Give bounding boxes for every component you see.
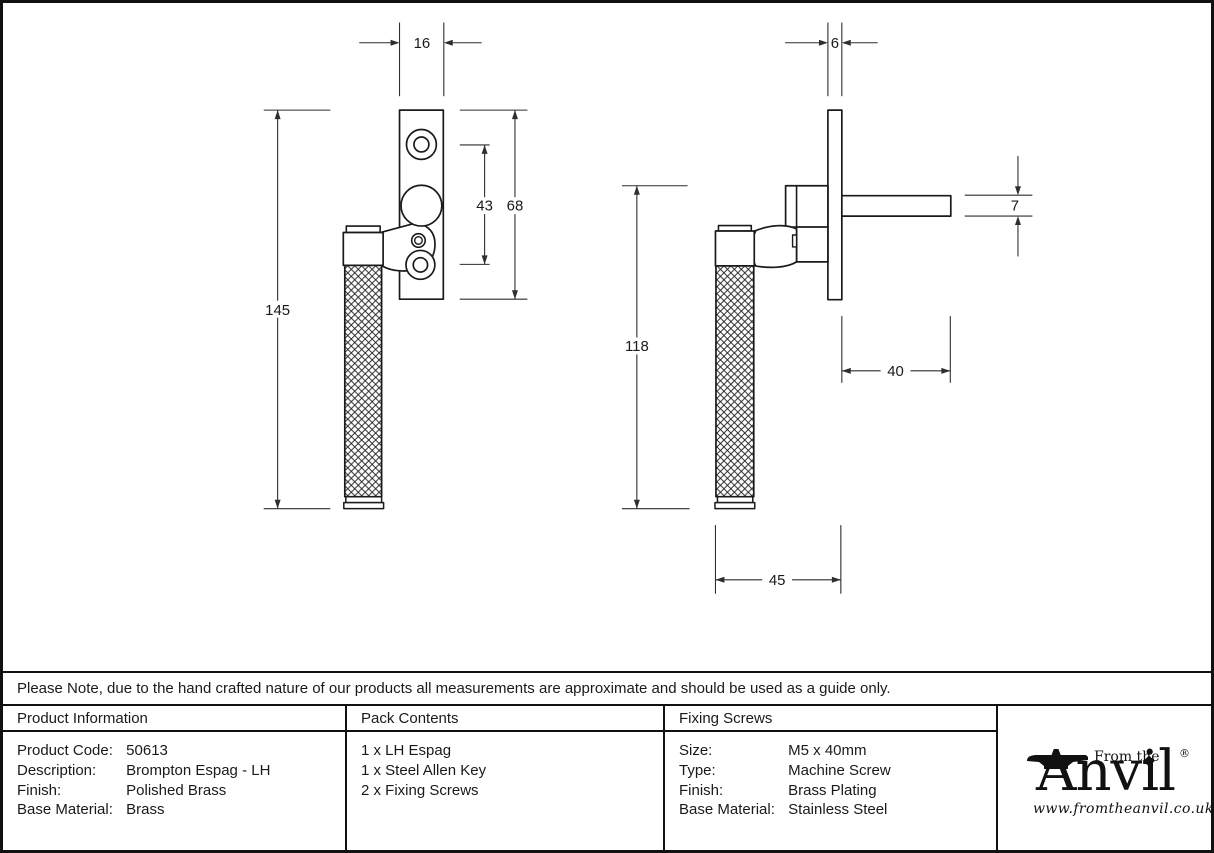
dim-plate-width: 16	[359, 23, 481, 97]
table-row: Finish: Brass Plating	[679, 781, 992, 801]
product-information-body: Product Code: 50613 Description: Brompto…	[3, 732, 345, 820]
knurled-grip-front	[345, 265, 382, 496]
anvil-icon	[1026, 753, 1090, 770]
side-view-dimensions: 6 118	[618, 23, 1032, 594]
pivot-knob-side	[786, 186, 828, 227]
product-information-column: Product Information Product Code: 50613 …	[3, 706, 347, 850]
dim-label-overall-length: 145	[265, 302, 290, 319]
knurled-grip-side	[716, 266, 754, 497]
table-row: Size: M5 x 40mm	[679, 741, 992, 761]
fixing-screws-body: Size: M5 x 40mm Type: Machine Screw Fini…	[665, 732, 996, 820]
ferrule-front	[343, 233, 383, 266]
table-row: Product Code: 50613	[17, 741, 341, 761]
dim-screw-spacing: 43	[460, 145, 498, 264]
dim-handle-length: 118	[618, 186, 690, 509]
table-row: Finish: Polished Brass	[17, 781, 341, 801]
dim-plate-thickness: 6	[785, 23, 878, 97]
dim-label-handle-length: 118	[625, 338, 649, 355]
dim-label-plate-thickness: 6	[831, 35, 839, 52]
espag-handle-drawing: 16 145	[3, 3, 1211, 671]
disclaimer-note: Please Note, due to the hand crafted nat…	[3, 671, 1211, 706]
list-item: 2 x Fixing Screws	[361, 781, 659, 801]
grip-end-cap-side	[717, 497, 752, 503]
ferrule-cap-front	[346, 226, 380, 232]
registered-trademark-icon: ®	[1179, 747, 1190, 760]
dim-label-spindle-square: 7	[1011, 198, 1019, 215]
technical-drawing-sheet: 16 145	[0, 0, 1214, 853]
spec-table: Product Information Product Code: 50613 …	[3, 706, 1211, 850]
front-view	[343, 110, 443, 509]
grip-end-cap-front	[346, 497, 382, 503]
grub-screw-side	[793, 235, 797, 247]
side-view	[715, 110, 951, 509]
backplate-side	[828, 110, 842, 300]
pack-contents-body: 1 x LH Espag 1 x Steel Allen Key 2 x Fix…	[347, 732, 663, 800]
dim-spindle-square: 7	[965, 156, 1033, 257]
dim-overall-length: 145	[261, 110, 331, 509]
dim-label-screw-spacing: 43	[476, 198, 493, 215]
table-row: Description: Brompton Espag - LH	[17, 761, 341, 781]
table-row: Base Material: Brass	[17, 800, 341, 820]
table-row: Type: Machine Screw	[679, 761, 992, 781]
dim-label-spindle-length: 40	[887, 363, 904, 380]
dim-projection: 45	[715, 525, 840, 594]
dim-spindle-length: 40	[842, 316, 950, 383]
dim-label-projection: 45	[769, 572, 786, 589]
dim-label-plate-width: 16	[414, 35, 431, 52]
spindle	[842, 196, 951, 216]
brand-logo-box: From the Anvil ® www.fromtheanvil.co.uk	[998, 706, 1211, 850]
list-item: 1 x Steel Allen Key	[361, 761, 659, 781]
fixing-screws-column: Fixing Screws Size: M5 x 40mm Type: Mach…	[665, 706, 998, 850]
drawing-area: 16 145	[3, 3, 1211, 671]
ferrule-side	[715, 231, 754, 266]
pack-contents-column: Pack Contents 1 x LH Espag 1 x Steel All…	[347, 706, 665, 850]
list-item: 1 x LH Espag	[361, 741, 659, 761]
logo-website-url: www.fromtheanvil.co.uk	[1033, 801, 1214, 817]
table-row: Base Material: Stainless Steel	[679, 800, 992, 820]
pack-contents-header: Pack Contents	[347, 706, 663, 732]
pivot-knob-front	[401, 185, 442, 226]
neck-boss-side	[797, 227, 828, 262]
fixing-screws-header: Fixing Screws	[665, 706, 996, 732]
handle-neck-side	[752, 226, 796, 268]
disclaimer-text: Please Note, due to the hand crafted nat…	[17, 680, 891, 697]
dim-label-plate-height: 68	[507, 198, 524, 215]
product-information-header: Product Information	[3, 706, 345, 732]
